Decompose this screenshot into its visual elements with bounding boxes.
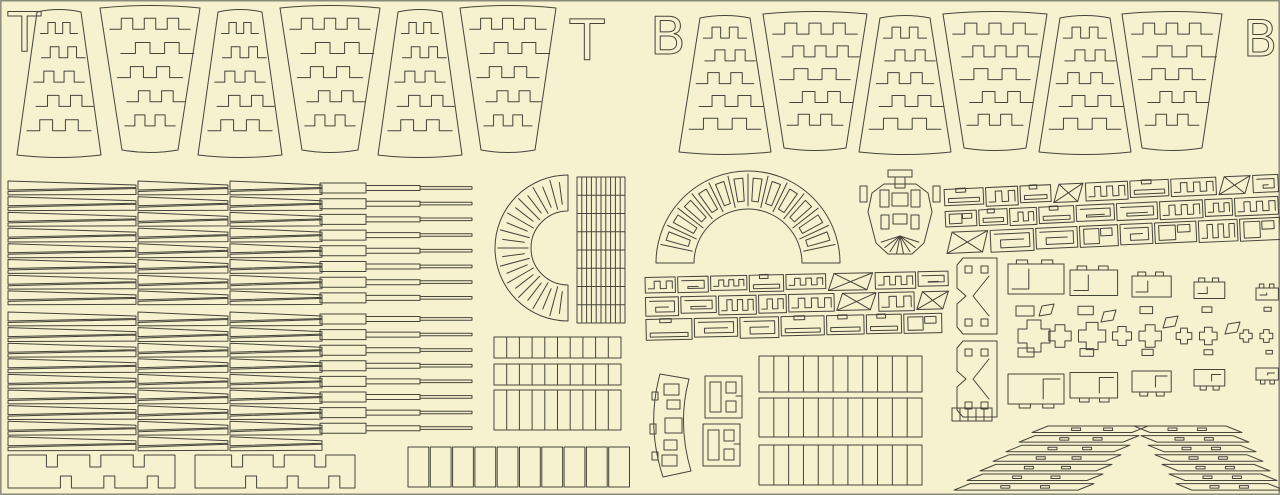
cut-path [301, 42, 374, 53]
cut-path [307, 91, 365, 102]
gore-panels-top-sheet [17, 6, 556, 158]
cut-path [828, 273, 873, 291]
cut-path [609, 447, 630, 487]
cut-path [1100, 398, 1110, 402]
cut-path [876, 73, 934, 84]
cut-path [650, 424, 656, 434]
cut-path [1006, 445, 1130, 452]
cut-path [41, 22, 78, 33]
cut-path [983, 217, 1004, 222]
cut-path [759, 356, 922, 392]
cut-path [1175, 438, 1184, 441]
cut-path [753, 284, 779, 289]
cut-path [1072, 457, 1081, 460]
cut-path [420, 202, 472, 205]
curved-slat-piece [650, 374, 691, 477]
cut-path [543, 289, 551, 309]
cut-path [1156, 392, 1164, 396]
cut-path [27, 120, 91, 131]
cut-path [507, 268, 533, 283]
cut-path [696, 73, 754, 84]
cut-path [1162, 464, 1270, 471]
cut-path [954, 484, 1094, 491]
cut-path [1043, 404, 1054, 408]
cut-path [925, 316, 936, 323]
sheet-label-b-right: B [1243, 10, 1277, 68]
cut-path [722, 299, 754, 311]
cut-path [973, 276, 989, 316]
cut-path [388, 120, 452, 131]
cut-path [1039, 304, 1054, 316]
cut-path [290, 18, 370, 29]
cut-path [127, 91, 185, 102]
cut-path [420, 427, 472, 430]
cut-path [320, 246, 366, 256]
cut-path [682, 280, 705, 288]
cut-path [871, 326, 898, 331]
cut-path [953, 23, 1038, 34]
cut-path [1019, 436, 1139, 443]
cut-path [208, 120, 272, 131]
notched-joiner-bars [8, 455, 355, 488]
cut-path [366, 410, 420, 415]
cut-path [480, 42, 550, 53]
cut-path [665, 418, 682, 433]
cut-path [520, 447, 541, 487]
diagonal-slat-stacks [954, 426, 1280, 490]
cut-path [703, 27, 746, 38]
puzzle-band-right [944, 174, 1280, 255]
cut-path [1199, 278, 1205, 282]
cut-path [1136, 281, 1148, 292]
cut-path [667, 400, 680, 409]
cut-path [726, 382, 736, 393]
cut-path [967, 114, 1023, 125]
cut-path [965, 266, 972, 273]
cut-path [787, 114, 843, 125]
cut-path [1079, 322, 1106, 349]
cut-path [965, 319, 972, 326]
cut-path [500, 258, 529, 266]
cut-path [1013, 211, 1034, 221]
cut-path [782, 46, 860, 57]
cut-path [420, 218, 472, 221]
cut-path [1074, 275, 1088, 291]
cut-path [222, 22, 259, 33]
ladder-strips-bottom [494, 337, 992, 485]
cut-path [366, 233, 420, 238]
cut-path [763, 12, 867, 151]
cut-path [1089, 185, 1125, 197]
cut-path [507, 213, 533, 228]
cut-path [1155, 455, 1263, 462]
cut-path [960, 69, 1030, 80]
cut-path [500, 230, 529, 238]
cut-path [1121, 206, 1154, 216]
cut-path [497, 447, 518, 487]
cut-path [1200, 327, 1218, 345]
cut-path [1139, 325, 1161, 347]
cut-path [305, 115, 355, 126]
cut-path [1099, 378, 1113, 394]
cut-path [1122, 12, 1222, 151]
cut-path [519, 276, 540, 297]
cut-path [784, 194, 804, 219]
cut-path [1018, 320, 1050, 352]
cut-path [981, 319, 988, 326]
cut-path [664, 384, 679, 395]
cut-path [543, 187, 551, 207]
cut-path [320, 277, 366, 287]
sheet-label-b-left: B [650, 7, 686, 67]
cut-path [533, 283, 548, 309]
cut-path [420, 333, 472, 336]
cut-path [957, 258, 997, 334]
cut-path [724, 449, 734, 460]
cut-path [1148, 91, 1209, 102]
cut-path [1062, 466, 1071, 469]
cut-path [1264, 307, 1271, 311]
cut-path [366, 295, 420, 300]
cut-path [645, 297, 678, 316]
cut-path [100, 6, 200, 153]
cut-path [366, 395, 420, 400]
cut-path [1080, 208, 1110, 217]
cut-path [1124, 227, 1149, 240]
cut-path [1019, 404, 1030, 408]
cut-path [1194, 370, 1225, 387]
cut-path [860, 186, 867, 202]
c-ring-maze-piece [495, 175, 568, 321]
cut-path [1076, 204, 1115, 222]
cut-path [41, 47, 85, 58]
cut-path [542, 447, 563, 487]
cut-path [650, 301, 675, 312]
cut-path [785, 328, 820, 333]
cut-path [402, 22, 439, 33]
cut-path [1100, 228, 1112, 236]
cut-path [475, 447, 496, 487]
cut-path [402, 47, 446, 58]
cut-path [1049, 325, 1071, 347]
cut-path [1101, 310, 1116, 322]
cut-path [1112, 326, 1131, 345]
cut-path [664, 440, 677, 450]
cut-path [933, 186, 940, 202]
cut-path [297, 67, 362, 78]
cut-path [885, 50, 935, 61]
stepped-batten-strips [320, 183, 472, 433]
cut-path [320, 230, 366, 240]
cut-path [420, 249, 472, 252]
cut-path [1270, 380, 1274, 384]
cut-path [503, 239, 525, 242]
cut-path [1177, 224, 1190, 232]
cut-path [1212, 278, 1218, 282]
cut-path [1145, 114, 1199, 125]
cut-path [1040, 486, 1049, 489]
cut-path [1093, 438, 1102, 441]
cut-path [1070, 373, 1118, 399]
cut-path [397, 95, 454, 106]
cut-path [1024, 466, 1033, 469]
cut-path [503, 254, 525, 257]
cut-path [1039, 206, 1075, 224]
cut-path [1168, 428, 1177, 431]
cut-path [752, 178, 762, 202]
cut-path [366, 201, 420, 206]
cut-path [519, 199, 540, 220]
fan-arch-piece [656, 171, 840, 263]
cut-path [708, 430, 719, 460]
cut-path [507, 265, 527, 273]
cut-path [990, 228, 1034, 252]
cut-path [1163, 204, 1200, 216]
cut-path [550, 287, 558, 316]
cut-path [1239, 486, 1248, 489]
cut-path [366, 332, 420, 337]
cut-path [869, 118, 941, 129]
cut-path [1238, 201, 1276, 212]
cut-path [320, 376, 366, 386]
cut-path [533, 187, 548, 213]
cut-path [685, 300, 712, 309]
cut-path [699, 189, 718, 213]
cut-path [1083, 447, 1092, 450]
cut-path [1013, 476, 1022, 479]
cut-path [882, 296, 912, 307]
cut-path [952, 408, 992, 421]
sheet-label-t-left: T [7, 1, 42, 64]
cut-path [773, 23, 858, 34]
cut-path [715, 182, 730, 206]
cut-path [1036, 457, 1045, 460]
cut-path [993, 455, 1121, 462]
cut-path [673, 215, 697, 234]
cut-path [470, 18, 547, 29]
cut-path [1225, 322, 1240, 334]
cut-path [1202, 307, 1212, 313]
cut-path [420, 396, 472, 399]
cut-path [550, 180, 558, 209]
cut-path [766, 182, 781, 206]
cut-path [681, 296, 717, 313]
cut-path [949, 214, 962, 224]
cut-path [957, 341, 997, 417]
cut-path [1259, 284, 1263, 288]
cut-path [1211, 447, 1220, 450]
cut-path [689, 118, 761, 129]
cut-path [744, 321, 775, 334]
cut-path [1132, 371, 1171, 392]
cut-path [1204, 438, 1213, 441]
cut-path [1244, 221, 1261, 238]
cut-path [749, 275, 784, 292]
cut-path [460, 6, 556, 153]
cut-path [908, 317, 923, 331]
cut-path [1240, 330, 1252, 342]
cutting-pattern-drawing: T T B B [0, 0, 1280, 495]
cut-path [883, 27, 926, 38]
cut-path [648, 281, 672, 289]
cut-path [1269, 284, 1273, 288]
cut-path [724, 430, 734, 441]
cut-path [1099, 266, 1109, 270]
hub-cap-piece [860, 170, 940, 254]
cut-path [320, 330, 366, 340]
cut-path [1001, 486, 1010, 489]
cut-path [1142, 349, 1153, 355]
cut-path [420, 318, 472, 321]
cut-path [790, 200, 812, 222]
cut-path [320, 199, 366, 209]
cut-path [1169, 474, 1277, 481]
cut-path [420, 380, 472, 383]
cut-path [477, 67, 539, 78]
cut-path [1163, 316, 1178, 328]
cut-path [1077, 266, 1087, 270]
cut-path [486, 91, 541, 102]
cut-path [1116, 202, 1157, 221]
cut-path [946, 231, 989, 254]
cut-path [879, 95, 944, 106]
cut-path [564, 447, 585, 487]
puzzle-band-center [645, 271, 949, 341]
cut-path [217, 95, 274, 106]
cut-path [980, 464, 1112, 471]
cut-path [1132, 23, 1213, 34]
cut-path [453, 447, 474, 487]
cut-path [1174, 181, 1213, 192]
cut-path [1213, 386, 1219, 390]
cut-path [1208, 203, 1230, 213]
cut-path [121, 42, 194, 53]
cut-path [779, 189, 798, 213]
gore-panels-bottom-sheet [679, 12, 1222, 155]
cut-path [1257, 179, 1275, 189]
sheet-label-t-right: T [569, 9, 605, 74]
puzzle-cluster-right [957, 258, 1280, 417]
cut-path [1212, 375, 1221, 382]
cut-path [1200, 386, 1206, 390]
bracket-square-pieces [703, 376, 742, 466]
cut-path [694, 318, 737, 338]
cut-path [981, 266, 988, 273]
cut-path [1196, 466, 1205, 469]
puzzle-band-group [944, 174, 1280, 255]
cut-path [1040, 231, 1074, 245]
cut-path [1198, 287, 1207, 294]
cut-path [793, 208, 818, 228]
cut-path [320, 314, 366, 324]
cut-path [1078, 306, 1093, 315]
cut-path [1182, 447, 1191, 450]
cut-path [1218, 457, 1227, 460]
cut-path [831, 327, 860, 332]
cut-path [790, 91, 853, 102]
cut-path [320, 293, 366, 303]
cut-path [420, 281, 472, 284]
cut-path [962, 213, 972, 218]
cut-path [420, 297, 472, 300]
cut-path [1070, 270, 1118, 296]
cut-path [366, 280, 420, 285]
cut-path [1197, 428, 1206, 431]
cut-path [195, 455, 355, 488]
cut-path [654, 374, 691, 477]
cut-path [1262, 221, 1274, 230]
cut-path [198, 10, 282, 158]
cut-path [734, 178, 744, 202]
cut-path [1051, 476, 1060, 479]
cut-path [1260, 293, 1267, 295]
cut-path [1056, 73, 1114, 84]
cut-path [366, 379, 420, 384]
cut-path [1140, 307, 1153, 314]
cut-path [420, 234, 472, 237]
cut-path [967, 474, 1103, 481]
cut-path [1080, 398, 1090, 402]
cut-path [661, 244, 692, 251]
cut-path [559, 292, 562, 314]
cut-path [859, 16, 951, 155]
cut-path [1201, 223, 1234, 238]
cut-path [1189, 457, 1198, 460]
cut-path [962, 46, 1040, 57]
cut-path [888, 170, 912, 177]
cut-path [1134, 189, 1165, 194]
cut-path [320, 183, 366, 193]
cut-path [1159, 225, 1176, 240]
cut-path [395, 71, 446, 82]
cut-path [1225, 466, 1234, 469]
cut-path [1043, 215, 1070, 220]
cut-path [1138, 69, 1205, 80]
cut-path [1065, 50, 1115, 61]
cut-path [699, 95, 764, 106]
lasercut-sheet-canvas: T T B B [0, 0, 1280, 495]
cut-path [799, 215, 823, 234]
cut-path [507, 223, 527, 231]
cut-path [911, 190, 920, 207]
cut-path [1203, 476, 1212, 479]
cut-path [1024, 195, 1047, 200]
cut-path [1130, 179, 1169, 197]
ladder-grid-panel [577, 177, 625, 323]
cut-path [110, 18, 190, 29]
cut-path [792, 298, 832, 308]
cut-path [911, 215, 919, 229]
cut-path [1049, 118, 1121, 129]
cut-path [366, 248, 420, 253]
cut-path [994, 233, 1030, 248]
cut-path [943, 12, 1047, 151]
cut-path [280, 6, 380, 153]
cut-path [1039, 16, 1131, 155]
cut-path [1059, 95, 1124, 106]
cut-path [320, 408, 366, 418]
tapered-plank-strips [8, 181, 322, 451]
cut-path [125, 115, 175, 126]
cut-path [1148, 445, 1256, 452]
cut-path [366, 264, 420, 269]
cut-path [868, 184, 932, 254]
cut-path [117, 67, 182, 78]
cut-path [1012, 269, 1029, 289]
cut-path [804, 244, 835, 251]
cut-path [36, 95, 93, 106]
cut-path [420, 265, 472, 268]
